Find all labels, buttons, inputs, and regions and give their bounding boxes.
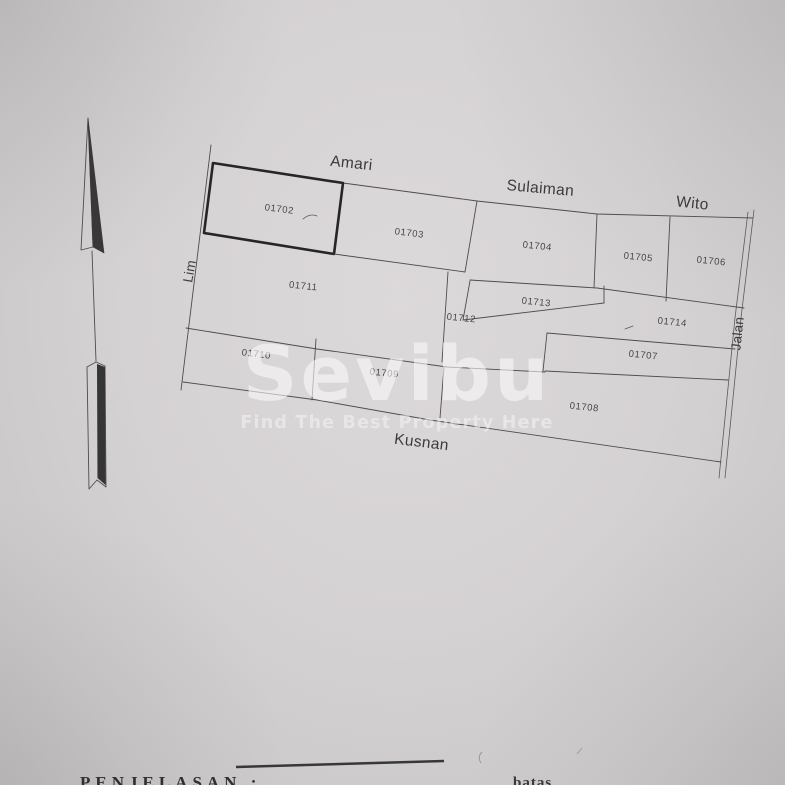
owner-label-kusnan: Kusnan	[393, 431, 450, 455]
parcel-boundaries	[181, 145, 754, 478]
parcel-label-01705: 01705	[623, 251, 653, 265]
parcel-label-01709: 01709	[369, 367, 399, 381]
parcel-label-01706: 01706	[696, 255, 726, 269]
road-label-lim: Lim	[180, 259, 199, 284]
parcel-label-01703: 01703	[394, 226, 425, 241]
owner-label-sulaiman: Sulaiman	[506, 177, 575, 200]
scan-artifact	[479, 752, 482, 763]
parcel-label-01704: 01704	[522, 240, 552, 254]
parcel-label-01702: 01702	[264, 202, 295, 217]
footer-partial-text: batas	[513, 775, 552, 785]
footer-rule-line	[236, 761, 444, 767]
footer-section-heading: PENJELASAN :	[80, 773, 261, 785]
road-label-jalan: Jalan	[728, 316, 746, 351]
scan-artifact	[577, 748, 582, 754]
north-arrow-icon	[81, 118, 106, 489]
parcel-label-01712: 01712	[446, 312, 476, 326]
parcel-labels: 01702 01703 01704 01705 01706 01711 0171…	[241, 202, 726, 414]
scan-tick-mark	[303, 215, 317, 219]
parcel-label-01707: 01707	[628, 349, 658, 363]
parcel-label-01708: 01708	[569, 401, 599, 415]
scan-tick-mark	[625, 326, 633, 329]
road-labels: Lim Jalan	[180, 259, 747, 351]
owner-label-wito: Wito	[675, 193, 709, 213]
parcel-map-svg: 01702 01703 01704 01705 01706 01711 0171…	[0, 0, 785, 785]
owner-labels: Amari Sulaiman Wito Kusnan	[329, 153, 709, 454]
parcel-label-01714: 01714	[657, 316, 687, 330]
parcel-label-01711: 01711	[288, 280, 318, 294]
scanned-parcel-document: 01702 01703 01704 01705 01706 01711 0171…	[0, 0, 785, 785]
owner-label-amari: Amari	[329, 153, 373, 174]
block-bottom-boundary	[183, 382, 721, 462]
parcel-label-01710: 01710	[241, 347, 272, 362]
parcel-label-01713: 01713	[521, 296, 551, 310]
